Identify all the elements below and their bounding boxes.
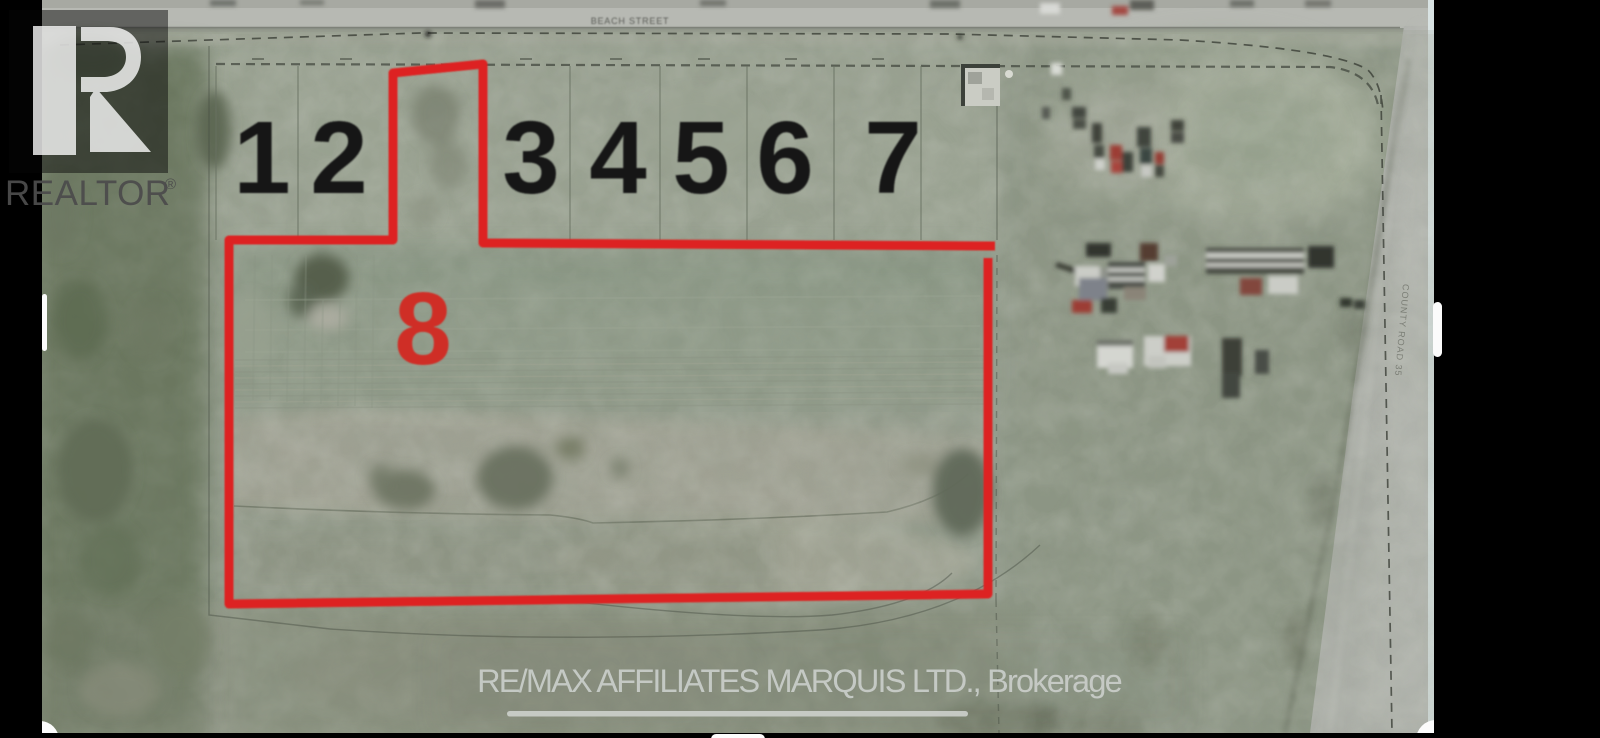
svg-text:RE/MAX AFFILIATES MARQUIS LTD.: RE/MAX AFFILIATES MARQUIS LTD., Brokerag… [477, 663, 1122, 699]
svg-text:5: 5 [672, 100, 729, 215]
svg-text:®: ® [165, 176, 176, 193]
svg-text:7: 7 [864, 100, 921, 215]
svg-text:2: 2 [310, 100, 367, 215]
svg-text:4: 4 [589, 100, 646, 215]
svg-text:8: 8 [394, 271, 451, 386]
svg-text:6: 6 [756, 100, 813, 215]
svg-text:3: 3 [502, 100, 559, 215]
svg-text:REALTOR: REALTOR [5, 174, 171, 213]
svg-text:BEACH STREET: BEACH STREET [591, 16, 670, 26]
svg-text:1: 1 [233, 100, 290, 215]
